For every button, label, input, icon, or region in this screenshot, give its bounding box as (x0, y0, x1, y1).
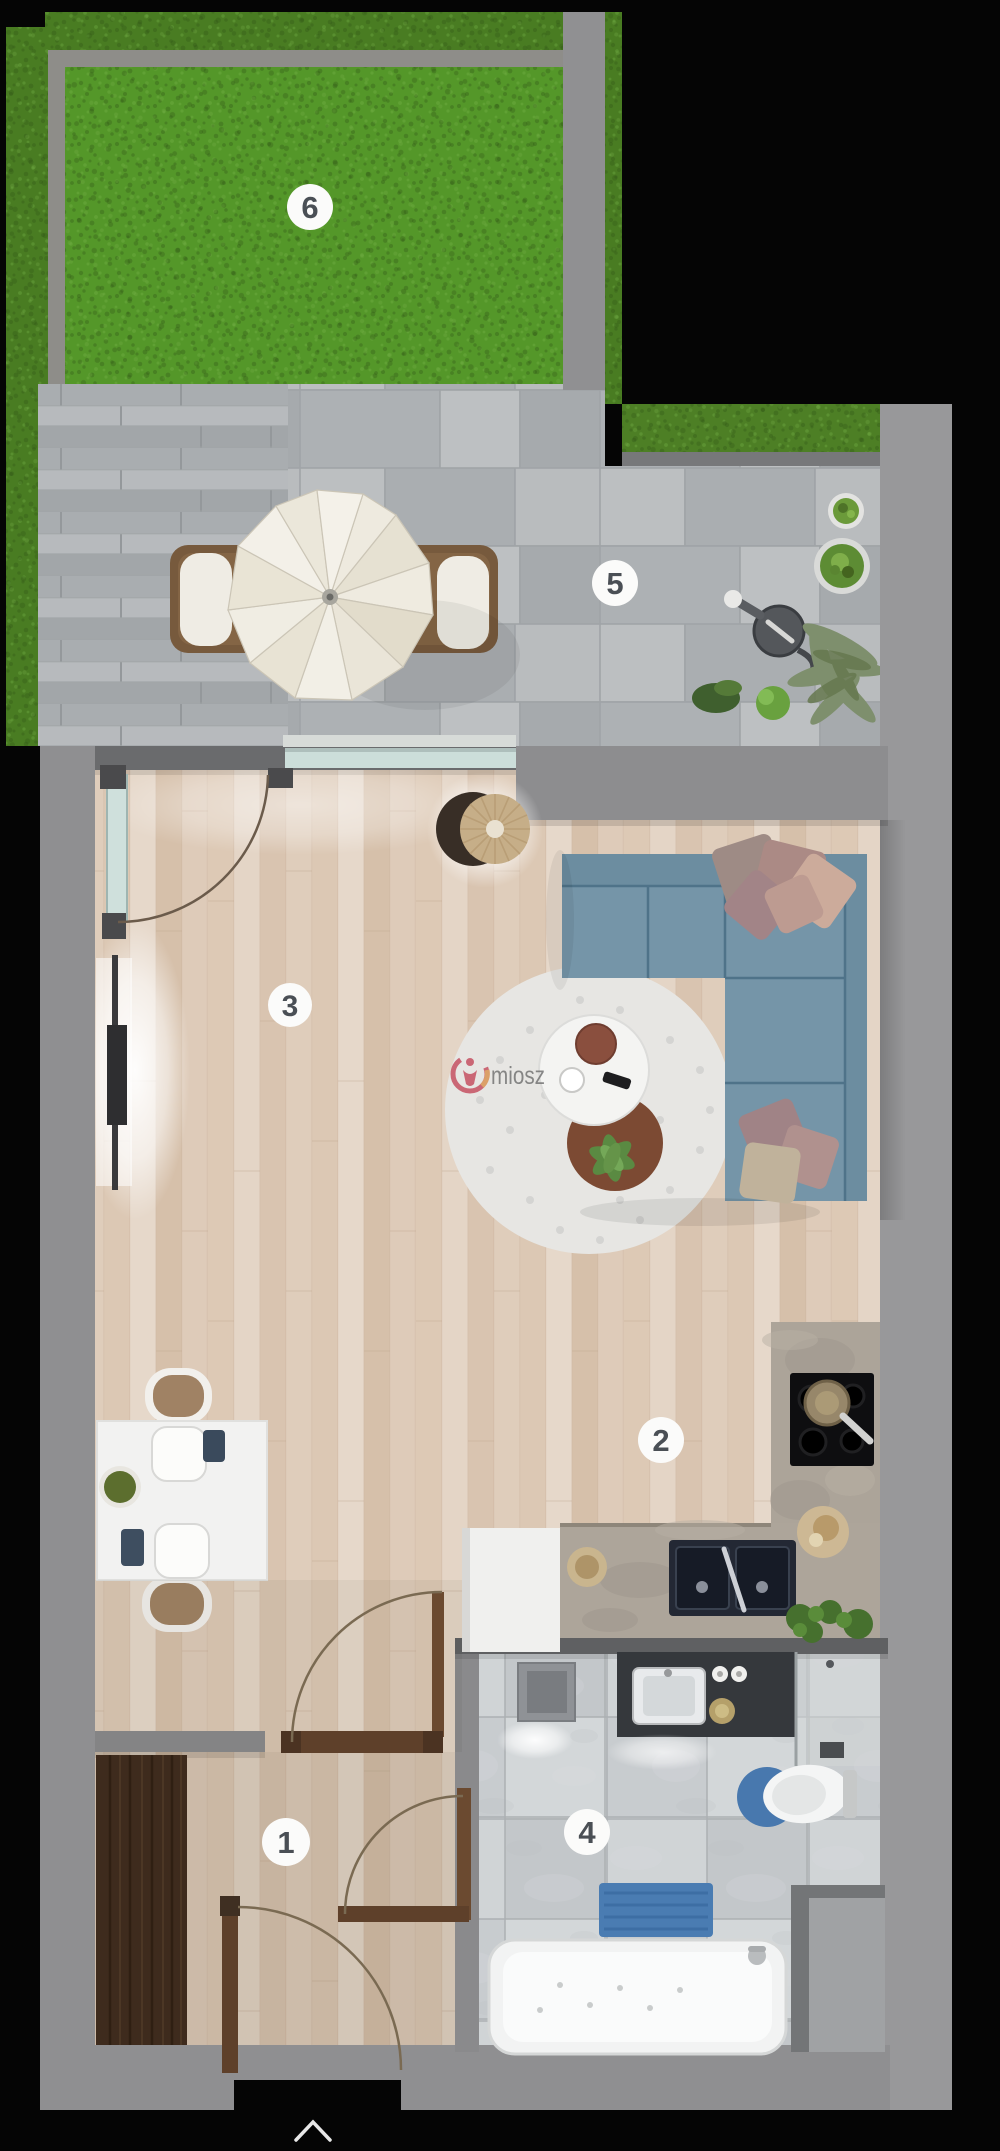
svg-text:1: 1 (277, 1825, 294, 1860)
svg-text:4: 4 (578, 1815, 596, 1850)
svg-text:6: 6 (301, 190, 318, 225)
svg-text:miosz: miosz (491, 1062, 545, 1090)
svg-text:5: 5 (606, 566, 623, 601)
svg-text:3: 3 (282, 990, 299, 1023)
svg-text:2: 2 (652, 1423, 669, 1458)
